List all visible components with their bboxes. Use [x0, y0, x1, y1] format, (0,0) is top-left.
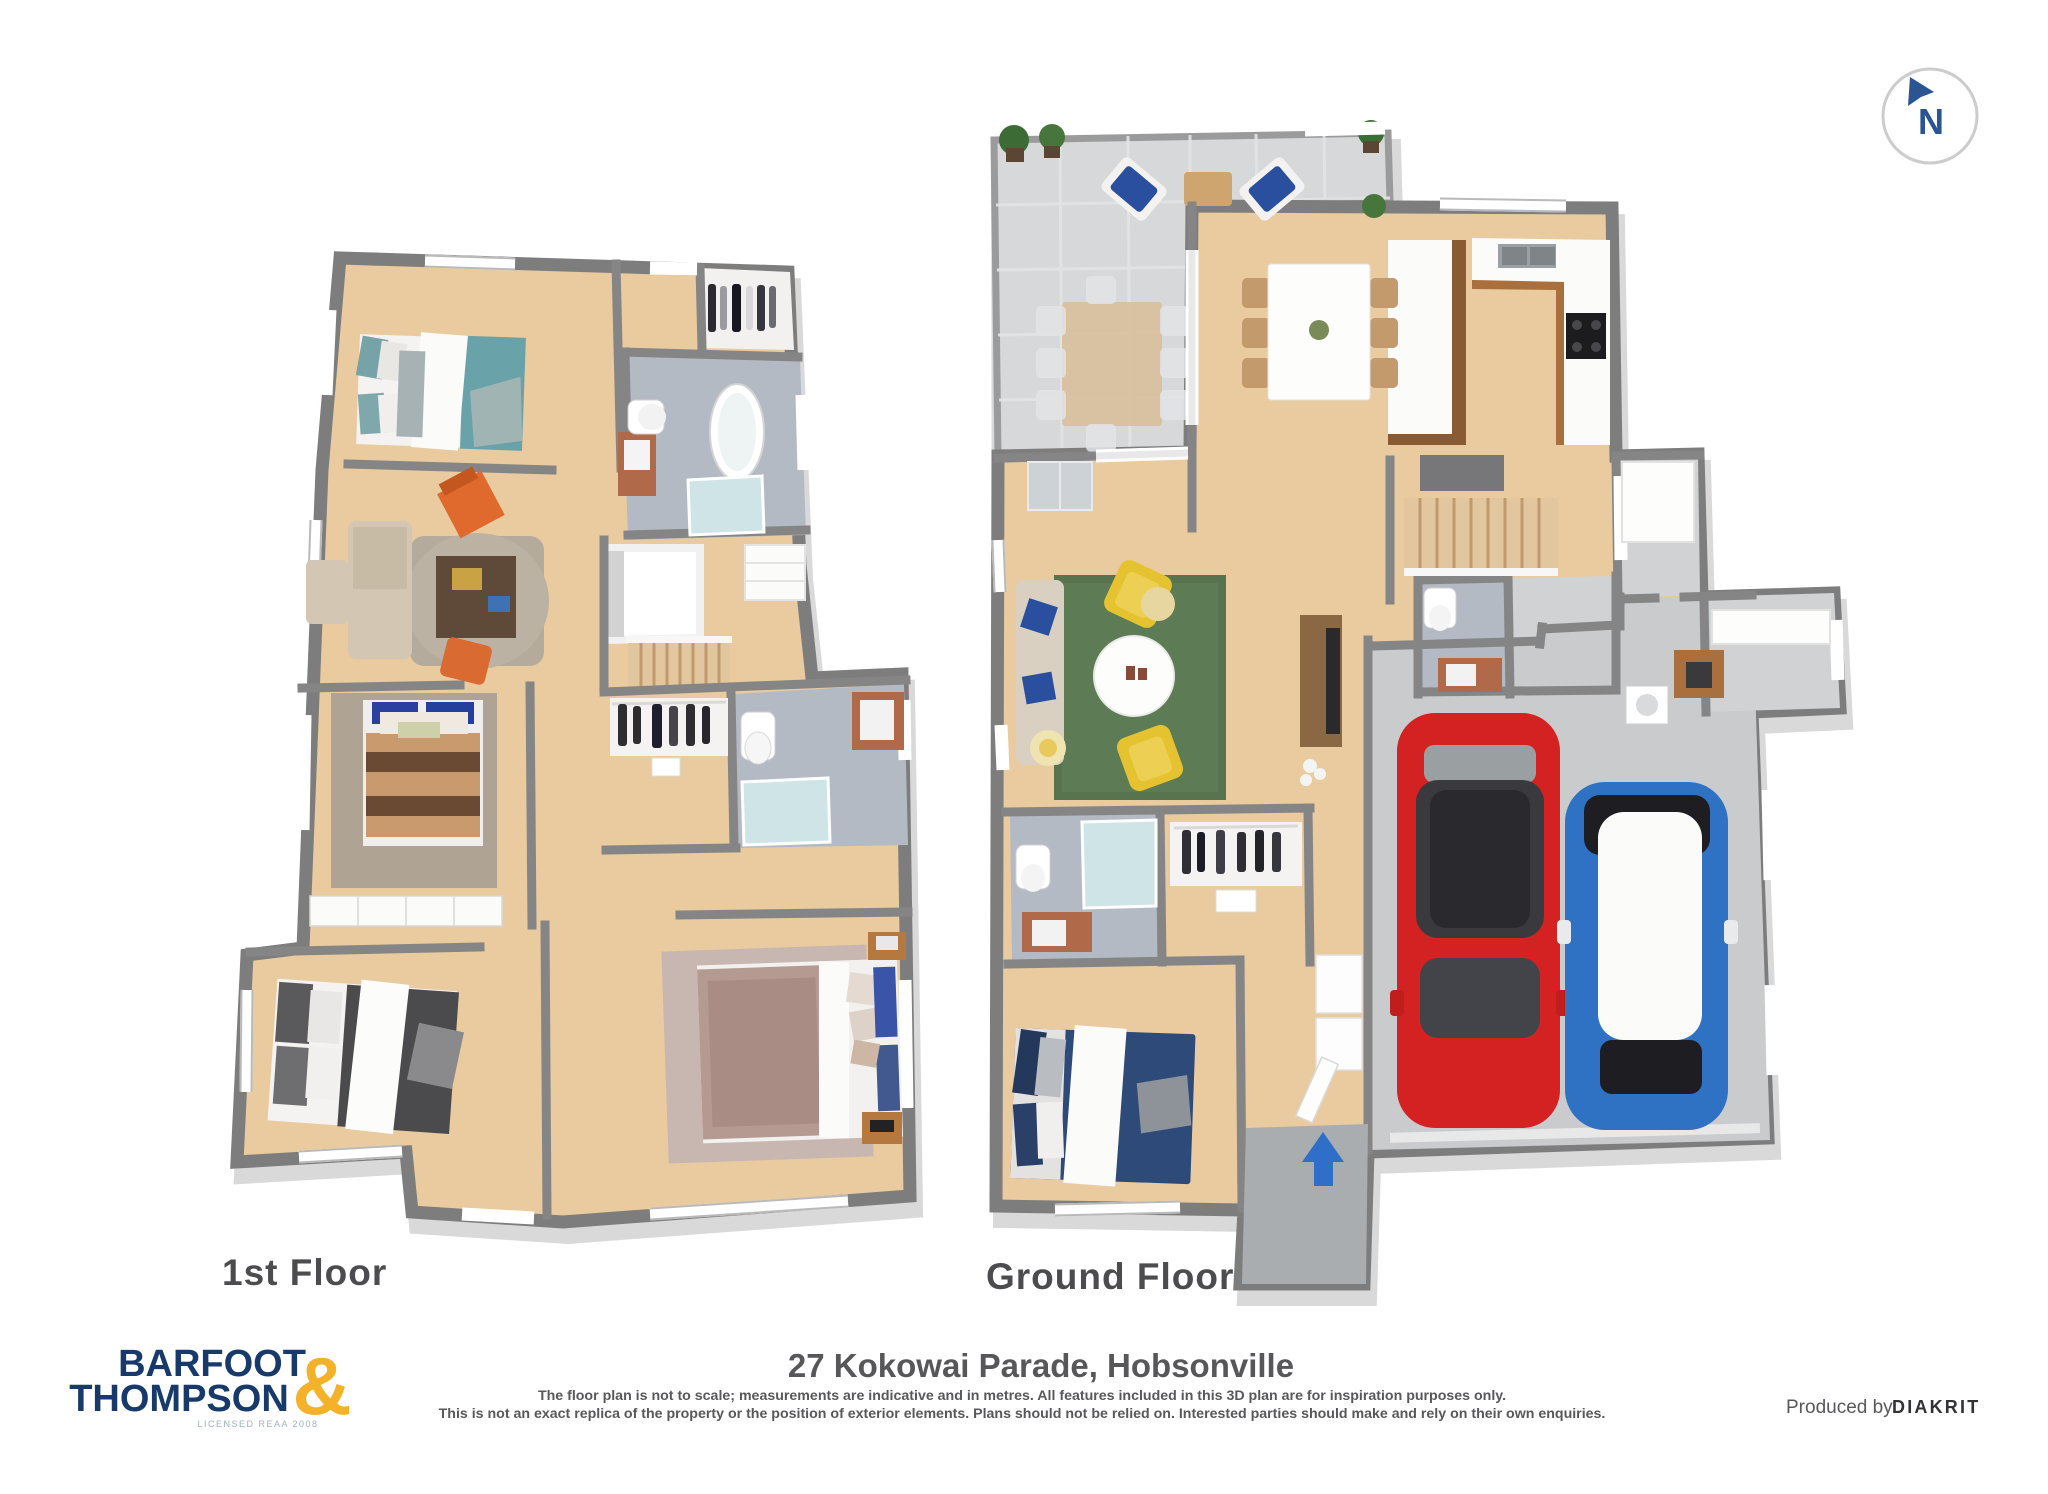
- svg-text:The floor plan is not to scale: The floor plan is not to scale; measurem…: [538, 1388, 1506, 1404]
- svg-text:Ground Floor: Ground Floor: [986, 1256, 1234, 1297]
- svg-text:Produced by: Produced by: [1786, 1397, 1893, 1418]
- svg-text:This is not an exact replica o: This is not an exact replica of the prop…: [439, 1406, 1606, 1422]
- svg-text:THOMPSON: THOMPSON: [69, 1378, 289, 1420]
- svg-text:LICENSED REAA 2008: LICENSED REAA 2008: [197, 1419, 318, 1429]
- svg-text:1st Floor: 1st Floor: [222, 1252, 387, 1293]
- svg-text:DIAKRIT: DIAKRIT: [1892, 1397, 1980, 1417]
- svg-text:N: N: [1918, 101, 1944, 142]
- svg-text:27 Kokowai Parade, Hobsonville: 27 Kokowai Parade, Hobsonville: [788, 1347, 1294, 1384]
